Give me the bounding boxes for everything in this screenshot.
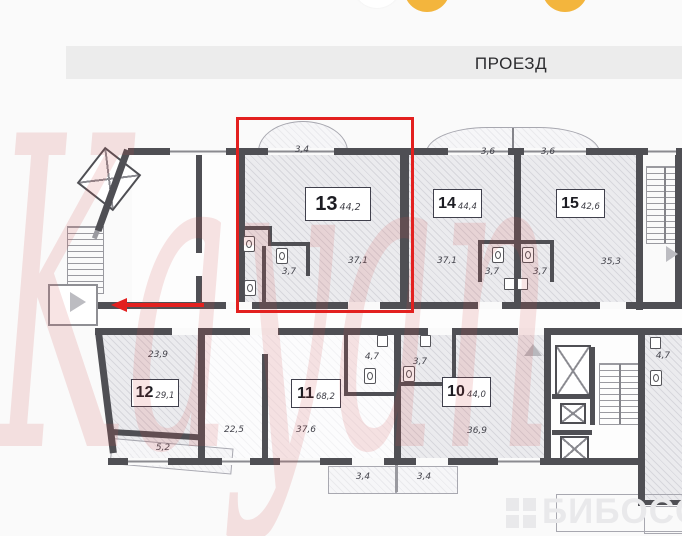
apartment-total-area: 44,4 <box>458 202 477 212</box>
window <box>498 458 540 465</box>
room-area-label: 37,1 <box>437 256 457 266</box>
room-area-label: 36,9 <box>467 426 487 436</box>
window <box>222 458 250 465</box>
apartment-number: 15 <box>561 195 579 213</box>
apartment-12-label-box: 12 29,1 <box>131 379 179 407</box>
bath-area-label: 3,7 <box>533 267 547 277</box>
balcony-area-label: 3,6 <box>541 147 555 157</box>
bath-area-label: 3,7 <box>413 357 427 367</box>
window <box>280 458 320 465</box>
door-opening <box>518 328 544 335</box>
sink-icon <box>377 335 388 347</box>
wall <box>262 354 268 462</box>
elevator-shaft <box>560 403 586 424</box>
balcony-area-label: 3,4 <box>356 472 370 482</box>
door-opening <box>416 458 448 465</box>
elevator-shaft <box>555 345 591 397</box>
door-opening <box>428 328 452 335</box>
toilet-icon <box>522 247 534 263</box>
wall-bathroom <box>478 240 482 282</box>
floorplan-screenshot: ПРОЕЗД <box>0 0 682 536</box>
staircase-bottom-right <box>599 363 641 425</box>
wall <box>544 332 551 462</box>
window <box>448 148 508 155</box>
highlight-rectangle-apartment-13 <box>236 117 414 313</box>
wall <box>638 330 645 506</box>
wall-bathroom <box>478 240 554 244</box>
balcony-area-label: 3,6 <box>481 147 495 157</box>
wall <box>198 332 205 462</box>
apartment-total-area: 42,6 <box>581 202 600 212</box>
toilet-icon <box>364 368 376 384</box>
balcony-area-label: 3,4 <box>417 472 431 482</box>
biboss-logo-icon <box>506 498 536 528</box>
sink-icon <box>650 337 661 349</box>
door-opening <box>352 458 384 465</box>
window <box>128 458 168 465</box>
wall <box>196 155 202 253</box>
apartment-15-label-box: 15 42,6 <box>556 189 605 218</box>
balcony-divider-wall <box>395 464 398 492</box>
room-area-label: 35,3 <box>601 257 621 267</box>
sink-icon <box>420 335 431 347</box>
toilet-icon <box>650 370 662 386</box>
entrance-arrow-icon <box>70 292 86 312</box>
wall <box>394 332 401 464</box>
sink-icon <box>504 278 515 290</box>
biboss-watermark: БИБОСС <box>498 492 682 536</box>
wall-bathroom <box>344 332 348 396</box>
window <box>648 148 676 155</box>
wall <box>552 430 592 435</box>
bath-area-label: 4,7 <box>365 352 379 362</box>
apartment-total-area: 68,2 <box>316 392 335 402</box>
wall <box>196 276 202 304</box>
staircase-divider <box>664 167 666 243</box>
toilet-icon <box>492 247 504 263</box>
door-opening <box>172 328 198 335</box>
apartment-14-label-box: 14 44,4 <box>433 189 482 218</box>
wall-bathroom <box>344 392 400 396</box>
door-opening <box>250 328 278 335</box>
staircase-divider <box>619 364 621 424</box>
room-area-label: 23,9 <box>148 350 168 360</box>
apartment-total-area: 29,1 <box>155 391 174 401</box>
apartment-number: 10 <box>447 383 465 401</box>
apartment-14-fill <box>408 154 516 304</box>
toilet-icon <box>403 366 415 382</box>
wall <box>552 394 592 399</box>
wall <box>590 347 595 425</box>
balcony-area-label: 5,2 <box>156 443 170 453</box>
entrance-arrow-icon <box>524 344 542 356</box>
sink-icon <box>517 278 528 290</box>
entrance-arrow-icon <box>666 246 678 262</box>
apartment-15-fill <box>520 154 637 304</box>
room-area-label: 22,5 <box>224 425 244 435</box>
biboss-watermark-text: БИБОСС <box>542 492 682 532</box>
wall <box>636 148 643 310</box>
apartment-number: 12 <box>136 384 154 402</box>
window <box>170 148 226 155</box>
bath-area-label: 3,7 <box>485 267 499 277</box>
apartment-number: 14 <box>438 195 456 213</box>
apartment-11-label-box: 11 68,2 <box>291 379 341 408</box>
apartment-10-label-box: 10 44,0 <box>442 377 491 407</box>
utility-area-label: 4,7 <box>656 351 670 361</box>
direction-arrow <box>126 303 204 307</box>
direction-arrow-head <box>111 298 127 312</box>
wall <box>675 155 682 305</box>
wall-bathroom <box>550 240 554 282</box>
apartment-number: 11 <box>297 385 314 403</box>
door-opening <box>600 302 626 309</box>
door-opening <box>478 302 502 309</box>
apartment-total-area: 44,0 <box>467 390 486 400</box>
common-rooms-fill <box>132 154 238 304</box>
room-area-label: 37,6 <box>296 425 316 435</box>
